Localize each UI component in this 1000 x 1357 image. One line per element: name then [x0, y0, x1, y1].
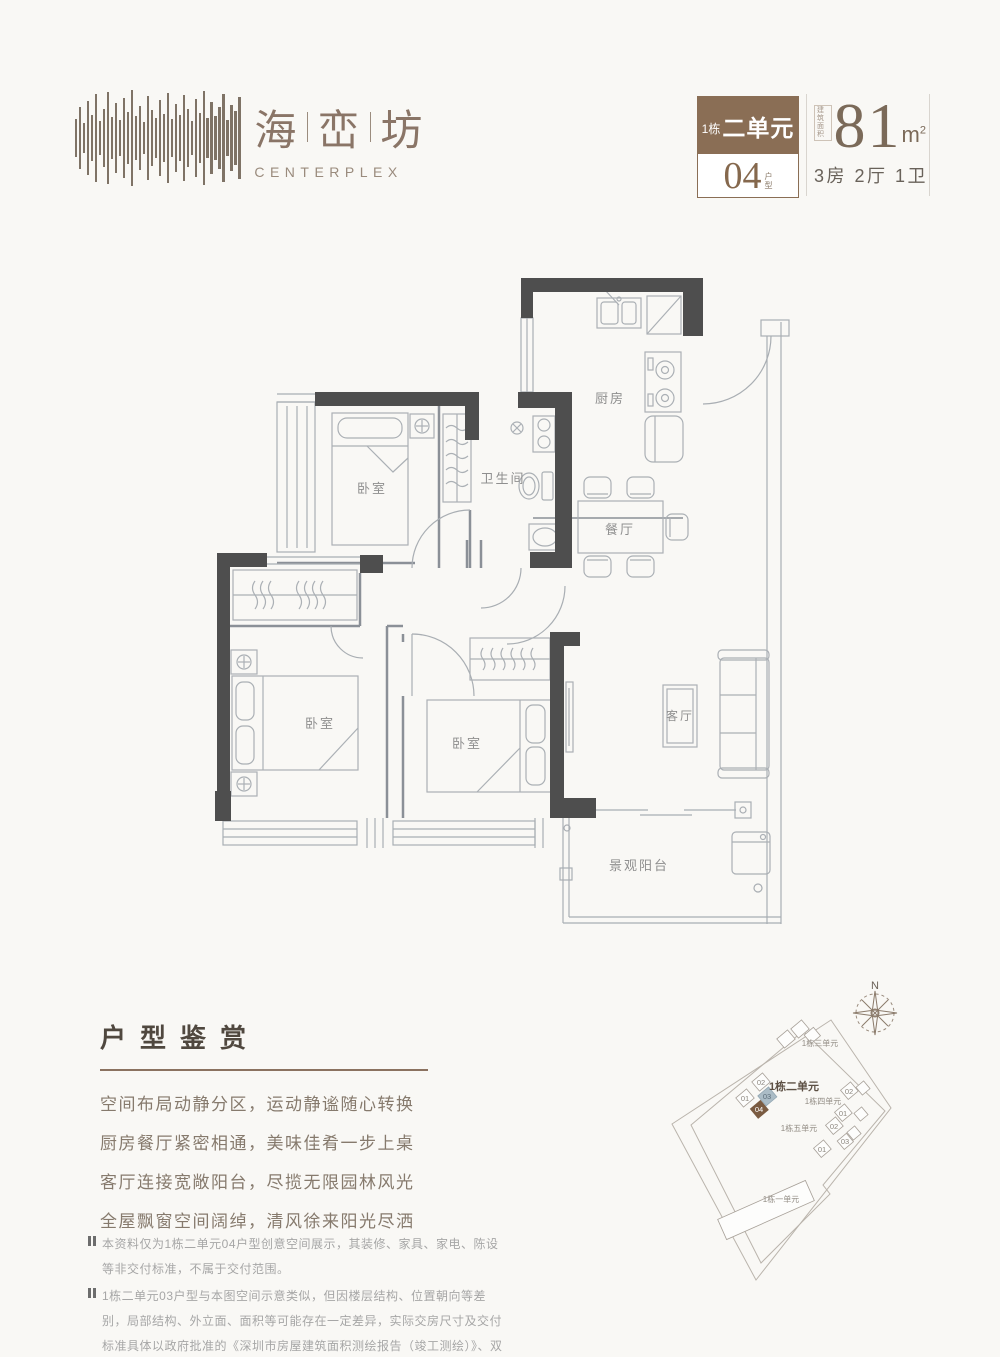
fridge-icon	[645, 416, 683, 462]
compass-icon: N	[853, 980, 897, 1035]
note-text: 1栋二单元03户型与本图空间示意类似，但因楼层结构、位置朝向等差别，局部结构、外…	[102, 1284, 510, 1357]
area-info: 建筑 面积 81 m2 3房 2厅 1卫	[814, 98, 926, 188]
unit-number: 02	[830, 1122, 838, 1131]
unit-badge-bottom: 04 户 型	[698, 154, 798, 197]
site-map: N	[653, 973, 1000, 1305]
note-bullet-icon	[88, 1288, 96, 1298]
unit-number: 01	[818, 1145, 826, 1154]
logo-bars-icon	[75, 86, 242, 190]
room-count: 3房 2厅 1卫	[814, 162, 926, 188]
note-item: 1栋二单元03户型与本图空间示意类似，但因楼层结构、位置朝向等差别，局部结构、外…	[88, 1284, 510, 1357]
area-main: 建筑 面积 81 m2	[814, 98, 926, 154]
sofa-icon	[718, 650, 769, 778]
block-label: 1栋一单元	[763, 1194, 799, 1204]
room-label-kitchen: 厨房	[595, 391, 625, 406]
area-unit-base: m	[902, 122, 920, 147]
bed-icon	[427, 700, 551, 792]
unit-number: 01	[741, 1094, 749, 1103]
room-label-balcony: 景观阳台	[609, 858, 669, 873]
block-label: 1栋五单元	[781, 1123, 817, 1133]
brand-char: 坊	[380, 97, 424, 158]
block-label: 1栋四单元	[805, 1096, 841, 1106]
area-stamp-line: 建筑	[817, 107, 829, 123]
unit-badge-top: 1栋 二单元	[698, 97, 798, 154]
type-suffix-char: 型	[765, 181, 773, 190]
unit-number: 02	[845, 1087, 853, 1096]
bed-icon	[332, 413, 434, 545]
washing-machine-icon	[732, 832, 770, 874]
brand-name: 海峦坊	[254, 97, 424, 158]
note-bullet-icon	[88, 1236, 96, 1246]
area-unit: m2	[902, 122, 926, 148]
room-label-bedroom: 卧室	[357, 481, 387, 496]
brand-text: 海峦坊 CENTERPLEX	[254, 97, 424, 180]
room-label-dining: 餐厅	[605, 522, 635, 537]
review-line: 厨房餐厅紧密相通，美味佳肴一步上桌	[100, 1130, 520, 1158]
room-label-bedroom: 卧室	[305, 716, 335, 731]
divider	[806, 94, 807, 196]
divider	[929, 94, 930, 196]
area-value: 81	[834, 98, 902, 154]
unit-badge: 1栋 二单元 04 户 型	[697, 96, 799, 198]
divider	[307, 112, 308, 142]
note-text: 本资料仅为1栋二单元04户型创意空间展示，其装修、家具、家电、陈设等非交付标准，…	[102, 1232, 510, 1282]
unit-name: 二单元	[722, 109, 794, 143]
building-number: 1栋	[702, 120, 721, 137]
review-line: 客厅连接宽敞阳台，尽揽无限园林风光	[100, 1169, 520, 1197]
floorplan-poster: 海峦坊 CENTERPLEX 1栋 二单元 04 户 型 建筑 面积 81 m2	[0, 0, 1000, 1357]
block-label-current: 1栋二单元	[769, 1079, 819, 1093]
unit-number: 01	[839, 1109, 847, 1118]
corner-cabinet-icon	[647, 296, 681, 334]
closet-icon	[233, 570, 357, 620]
divider	[370, 112, 371, 142]
tv-icon	[566, 682, 573, 752]
brand-char: 海	[254, 97, 298, 158]
floorplan-drawing: 厨房 卫生间 卧室 餐厅 卧室 卧室 客厅 景观阳台	[215, 276, 800, 936]
type-suffix-char: 户	[765, 172, 773, 181]
room-label-bathroom: 卫生间	[480, 471, 525, 486]
review-section: 户型鉴赏 空间布局动静分区，运动静谧随心转换 厨房餐厅紧密相通，美味佳肴一步上桌…	[100, 1018, 520, 1236]
room-label-bedroom: 卧室	[452, 736, 482, 751]
furniture	[231, 290, 770, 874]
brand-char: 峦	[317, 97, 361, 158]
room-labels: 厨房 卫生间 卧室 餐厅 卧室 卧室 客厅 景观阳台	[305, 391, 694, 873]
area-unit-sup: 2	[920, 125, 926, 137]
note-item: 本资料仅为1栋二单元04户型创意空间展示，其装修、家具、家电、陈设等非交付标准，…	[88, 1232, 510, 1282]
block-labels: 1栋三单元 1栋二单元 1栋四单元 1栋五单元 1栋一单元	[763, 1038, 841, 1204]
review-line: 空间布局动静分区，运动静谧随心转换	[100, 1091, 520, 1119]
unit-number: 03	[763, 1092, 771, 1101]
compass-north-label: N	[871, 980, 879, 992]
disclaimer-notes: 本资料仅为1栋二单元04户型创意空间展示，其装修、家具、家电、陈设等非交付标准，…	[88, 1232, 510, 1357]
kitchen-sink-icon	[597, 290, 641, 328]
area-stamp: 建筑 面积	[814, 105, 832, 141]
unit-number: 04	[755, 1105, 763, 1114]
unit-number: 02	[757, 1078, 765, 1087]
area-stamp-line: 面积	[817, 123, 829, 139]
brand-logo: 海峦坊 CENTERPLEX	[75, 86, 424, 190]
brand-latin: CENTERPLEX	[254, 164, 424, 180]
site-boundary	[672, 1020, 891, 1280]
block-label: 1栋三单元	[802, 1038, 838, 1048]
review-title: 户型鉴赏	[100, 1018, 520, 1055]
divider	[100, 1069, 428, 1071]
windows	[223, 318, 789, 924]
stove-icon	[645, 352, 681, 412]
type-suffix: 户 型	[765, 172, 773, 190]
room-label-living: 客厅	[666, 708, 694, 723]
unit-number: 03	[841, 1137, 849, 1146]
type-number: 04	[724, 157, 762, 195]
bed-icon	[231, 650, 358, 796]
